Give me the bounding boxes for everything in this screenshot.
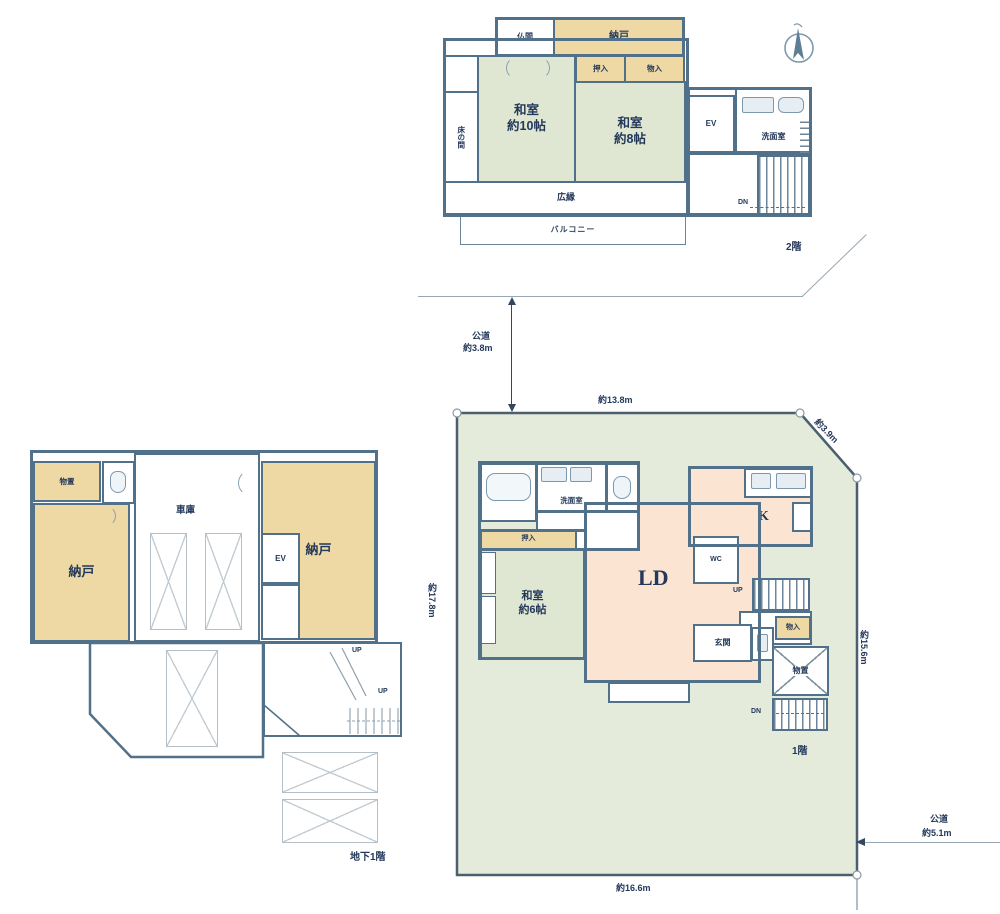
door-arc	[238, 470, 264, 496]
door-arc	[528, 57, 550, 79]
door-arc	[506, 57, 528, 79]
room-label: 広縁	[557, 192, 575, 203]
road-width-arrow	[511, 303, 512, 407]
room-label: WC	[710, 556, 722, 565]
butsudan-sliver	[481, 596, 496, 644]
ramp-space	[166, 650, 218, 747]
room-label: EV	[275, 554, 286, 564]
room-label: 洗面室	[762, 132, 786, 142]
room-label: EV	[706, 119, 717, 129]
toilet-icon	[110, 471, 126, 493]
room-1f-wc-mid: WC	[693, 536, 739, 584]
refrigerator-space	[792, 502, 812, 532]
room-1f-genkan: 玄関	[693, 624, 752, 662]
room-1f-oshiire: 押入	[480, 529, 577, 550]
tokonoma-sliver	[481, 552, 496, 594]
arrow-left-icon	[856, 838, 865, 846]
kitchen-stove-fixture	[751, 473, 771, 489]
car-space	[150, 533, 187, 630]
room-label: 約10帖	[507, 119, 546, 135]
room-label: 納戸	[305, 542, 331, 558]
room-label: 床の間	[456, 126, 465, 149]
small-fixture	[757, 634, 768, 652]
porch-terrace	[608, 682, 690, 703]
washbasin-fixture	[541, 467, 567, 482]
road-right-line	[862, 842, 1000, 843]
basement-label: 地下1階	[350, 848, 386, 863]
road-left-width: 約3.8m	[463, 341, 493, 354]
site-dim-left: 約17.8m	[426, 583, 439, 618]
room-label: 押入	[593, 64, 608, 73]
compass-north-icon	[774, 18, 822, 72]
room-label: 押入	[522, 535, 536, 544]
room-b1-hall	[261, 584, 300, 640]
toilet-fixture	[778, 97, 804, 113]
road-right-width: 約5.1m	[922, 826, 952, 839]
floor1-label: 1階	[792, 742, 808, 757]
stairs-2f	[757, 155, 810, 215]
arrow-down-icon	[508, 404, 516, 412]
room-label: 物入	[786, 624, 800, 633]
room-2f-washitsu10: 和室 約10帖	[477, 55, 576, 183]
road-edge-line	[418, 296, 803, 297]
room-label: 約6帖	[518, 604, 546, 618]
bathtub-fixture	[486, 473, 531, 501]
room-label: 玄関	[715, 638, 731, 648]
floor2-label: 2階	[786, 238, 802, 253]
room-label: 和室	[514, 103, 539, 119]
room-2f-nando: 納戸	[553, 17, 685, 57]
room-label: バルコニー	[551, 225, 596, 235]
room-2f-monoire: 物入	[624, 55, 685, 83]
room-2f-tokonoma: 床の間	[443, 91, 479, 183]
room-label: 物置	[60, 477, 75, 486]
room-2f-elevator: EV	[687, 95, 735, 153]
parking-space	[282, 752, 378, 793]
room-label: 和室	[617, 116, 642, 132]
room-b1-nando-left: 納戸	[33, 503, 130, 642]
stairs-1f-dash	[776, 713, 824, 714]
b1-lower-structure	[75, 638, 415, 766]
stairs-1f-dn-label: DN	[751, 708, 761, 715]
stairs-b1-up-label: UP	[352, 647, 362, 654]
stairs-1f-up-label: UP	[733, 587, 743, 594]
site-dim-right: 約15.6m	[858, 630, 871, 665]
room-2f-corner	[443, 55, 479, 93]
site-dim-bottom: 約16.6m	[616, 881, 651, 894]
room-2f-washitsu8: 和室 約8帖	[574, 81, 686, 183]
kitchen-sink-fixture	[776, 473, 806, 489]
door-arc	[96, 506, 116, 526]
pipe-shaft	[800, 117, 812, 153]
room-label: 約8帖	[614, 132, 646, 148]
room-2f-oshiire: 押入	[575, 55, 626, 83]
room-2f-hiroen: 広縁	[443, 181, 689, 215]
toilet-icon	[613, 476, 631, 499]
room-label: 物入	[647, 64, 662, 73]
room-label: 物置	[792, 666, 810, 676]
arrow-up-icon	[508, 297, 516, 305]
sink-fixture	[742, 97, 774, 113]
room-label: 納戸	[609, 31, 629, 44]
road-right-label: 公道	[930, 812, 948, 825]
parking-space	[282, 799, 378, 843]
room-b1-monooki: 物置	[33, 461, 101, 502]
car-space	[205, 533, 242, 630]
stairs-2f-dash	[750, 207, 805, 208]
room-1f-ld-label: LD	[638, 565, 669, 591]
room-1f-monoire: 物入	[775, 616, 811, 640]
road-edge-diagonal	[802, 234, 867, 297]
stairs-1f-dn	[772, 698, 828, 731]
site-dim-top: 約13.8m	[598, 393, 633, 406]
room-label: 洗面室	[560, 496, 583, 505]
room-2f-balcony: バルコニー	[460, 215, 686, 245]
washer-fixture	[570, 467, 592, 482]
room-b1-elevator: EV	[261, 533, 300, 584]
room-1f-monooki: 物置	[772, 646, 829, 696]
room-label: 仏間	[517, 32, 533, 42]
stairs-1f-up	[752, 578, 810, 611]
room-1f-k-label: K	[758, 509, 769, 525]
stairs-b1-up-label2: UP	[378, 688, 388, 695]
room-b1-garage-label: 車庫	[176, 502, 195, 516]
room-2f-butsuma: 仏間	[495, 17, 555, 57]
room-label: 和室	[522, 590, 544, 604]
room-label: 納戸	[68, 564, 94, 580]
floorplan-canvas: 公道 約3.8m 公道 約5.1m 約13.8m 約17.8m 約3.9m 約1…	[0, 0, 1000, 914]
stairs-2f-dn-label: DN	[738, 199, 748, 206]
